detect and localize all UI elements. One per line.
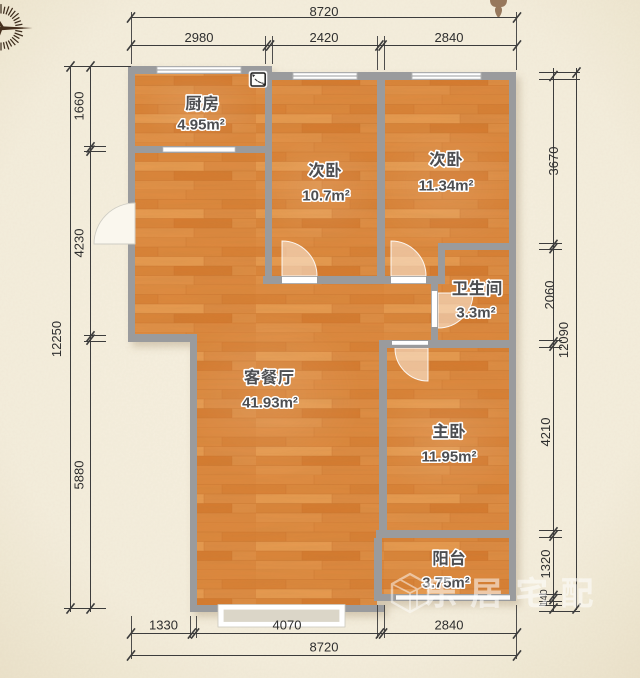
svg-text:3.3m²: 3.3m²: [456, 304, 495, 321]
svg-text:2840: 2840: [435, 30, 464, 45]
svg-text:11.95m²: 11.95m²: [421, 448, 476, 465]
svg-text:2420: 2420: [310, 30, 339, 45]
svg-text:2060: 2060: [542, 281, 557, 310]
svg-text:4210: 4210: [538, 418, 553, 447]
svg-text:2840: 2840: [435, 618, 464, 633]
svg-text:1330: 1330: [149, 618, 178, 633]
svg-text:10.7m²: 10.7m²: [302, 187, 350, 204]
svg-text:8720: 8720: [310, 4, 339, 19]
svg-text:3670: 3670: [546, 147, 561, 176]
svg-text:12250: 12250: [49, 321, 64, 357]
svg-text:1320: 1320: [538, 550, 553, 579]
svg-text:12090: 12090: [556, 322, 571, 358]
svg-text:2980: 2980: [185, 30, 214, 45]
svg-text:4230: 4230: [72, 229, 87, 258]
svg-text:11.34m²: 11.34m²: [418, 177, 473, 194]
svg-text:4.95m²: 4.95m²: [177, 116, 225, 133]
svg-text:41.93m²: 41.93m²: [242, 394, 298, 411]
svg-text:5880: 5880: [72, 461, 87, 490]
svg-text:8720: 8720: [310, 640, 339, 655]
svg-text:1660: 1660: [72, 92, 87, 121]
svg-text:4070: 4070: [273, 618, 302, 633]
